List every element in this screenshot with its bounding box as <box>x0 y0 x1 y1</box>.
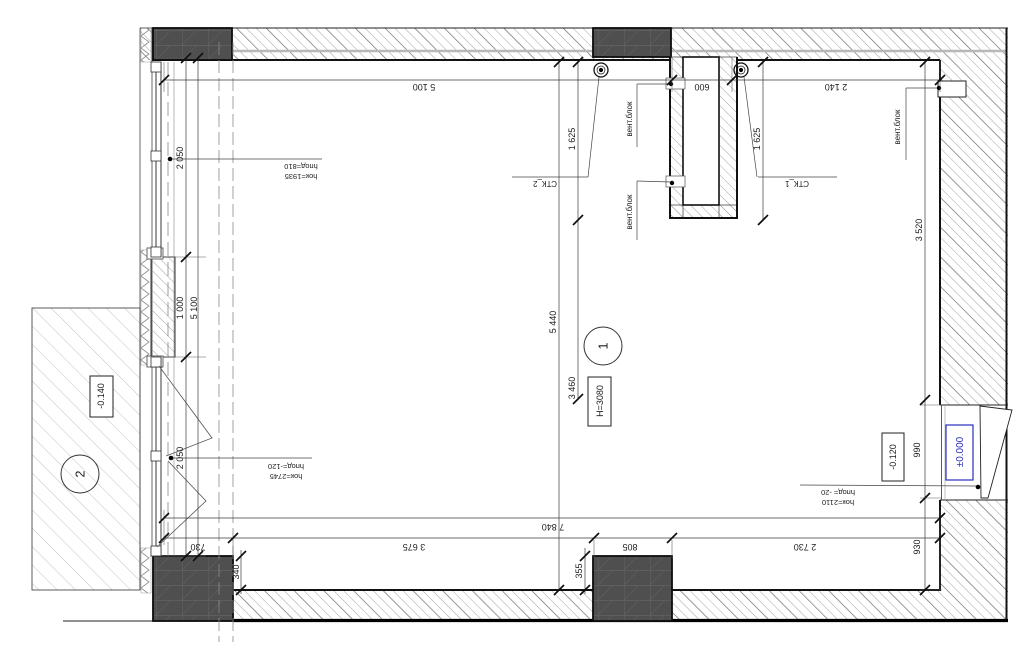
dim-column-355: 355 <box>574 563 584 578</box>
dimension-texts: 5 100 600 2 140 7 840 730 3 675 805 2 73… <box>175 82 924 580</box>
insulation-strip <box>141 28 151 62</box>
column-bottom-left <box>153 556 233 621</box>
dim-bottom-total: 7 840 <box>542 522 565 532</box>
floor-plan-page: СТК_2 СТК_1 вент.блок вент.блок вент.бло… <box>0 0 1024 657</box>
dim-bottom-4: 2 730 <box>794 542 817 552</box>
dim-right-3: 930 <box>912 539 922 554</box>
dim-right-1: 3 520 <box>914 219 924 242</box>
door-h-ok: hок=2110 <box>822 498 854 507</box>
dim-column-340: 340 <box>231 564 241 579</box>
label-stk2: СТК_2 <box>532 179 557 188</box>
dim-center-2: 3 460 <box>567 377 577 400</box>
vent-shaft <box>666 57 737 218</box>
label-vent-block: вент.блок <box>893 109 902 144</box>
door-h-pod: hпод= -20 <box>821 488 855 497</box>
dim-shaft-1: 1 625 <box>567 128 577 151</box>
column-top-left <box>153 28 232 60</box>
dim-center-1: 5 440 <box>548 311 558 334</box>
label-vent-block: вент.блок <box>625 101 634 136</box>
height-callouts: hок=1935 hпод=810 hок=2745 hпод=-120 hок… <box>168 157 976 507</box>
dim-bottom-2: 3 675 <box>403 542 426 552</box>
insulation-strip <box>141 250 151 365</box>
dim-top-1: 5 100 <box>413 82 436 92</box>
floor-plan-drawing: СТК_2 СТК_1 вент.блок вент.блок вент.бло… <box>0 0 1024 657</box>
window-swing-mark <box>159 366 212 456</box>
dim-left-total: 5 100 <box>189 297 199 320</box>
wall-outlines <box>63 28 1008 621</box>
win1-h-ok: hок=1935 <box>285 172 318 181</box>
window-swing-mark <box>157 461 206 547</box>
level-terrace: -0.140 <box>96 383 106 409</box>
concrete-columns <box>153 28 672 621</box>
level-zero: ±0.000 <box>955 436 966 467</box>
label-vent-block: вент.блок <box>625 194 634 229</box>
room1-height: H=3080 <box>595 385 605 417</box>
win2-h-pod: hпод=-120 <box>268 462 304 471</box>
vent-outlet <box>938 81 966 97</box>
level-inner: -0.120 <box>888 444 898 470</box>
win1-h-pod: hпод=810 <box>284 162 318 171</box>
exterior-walls <box>140 28 1008 622</box>
shaft-opening <box>666 176 685 187</box>
axis-lines <box>219 42 233 642</box>
dim-left-1: 2 050 <box>175 147 185 170</box>
dim-shaft-2: 1 625 <box>752 128 762 151</box>
dim-left-2: 1 000 <box>175 297 185 320</box>
dim-bottom-1: 730 <box>190 542 205 552</box>
column-top-middle <box>593 28 671 57</box>
dim-bottom-3: 805 <box>622 542 637 552</box>
room2-number: 2 <box>74 470 88 477</box>
dim-top-2: 600 <box>694 82 709 92</box>
win2-h-ok: hок=2745 <box>270 472 303 481</box>
label-stk1: СТК_1 <box>784 179 809 188</box>
wall-pier <box>151 257 175 357</box>
column-bottom-middle <box>593 556 672 621</box>
room1-number: 1 <box>597 342 611 349</box>
dim-top-3: 2 140 <box>825 82 848 92</box>
level-marks: -0.140 -0.120 ±0.000 <box>90 376 973 481</box>
dim-right-2: 990 <box>912 442 922 457</box>
terrace-area <box>32 308 140 590</box>
insulation-strip <box>141 548 151 593</box>
riser-stk2-symbol <box>594 63 608 77</box>
